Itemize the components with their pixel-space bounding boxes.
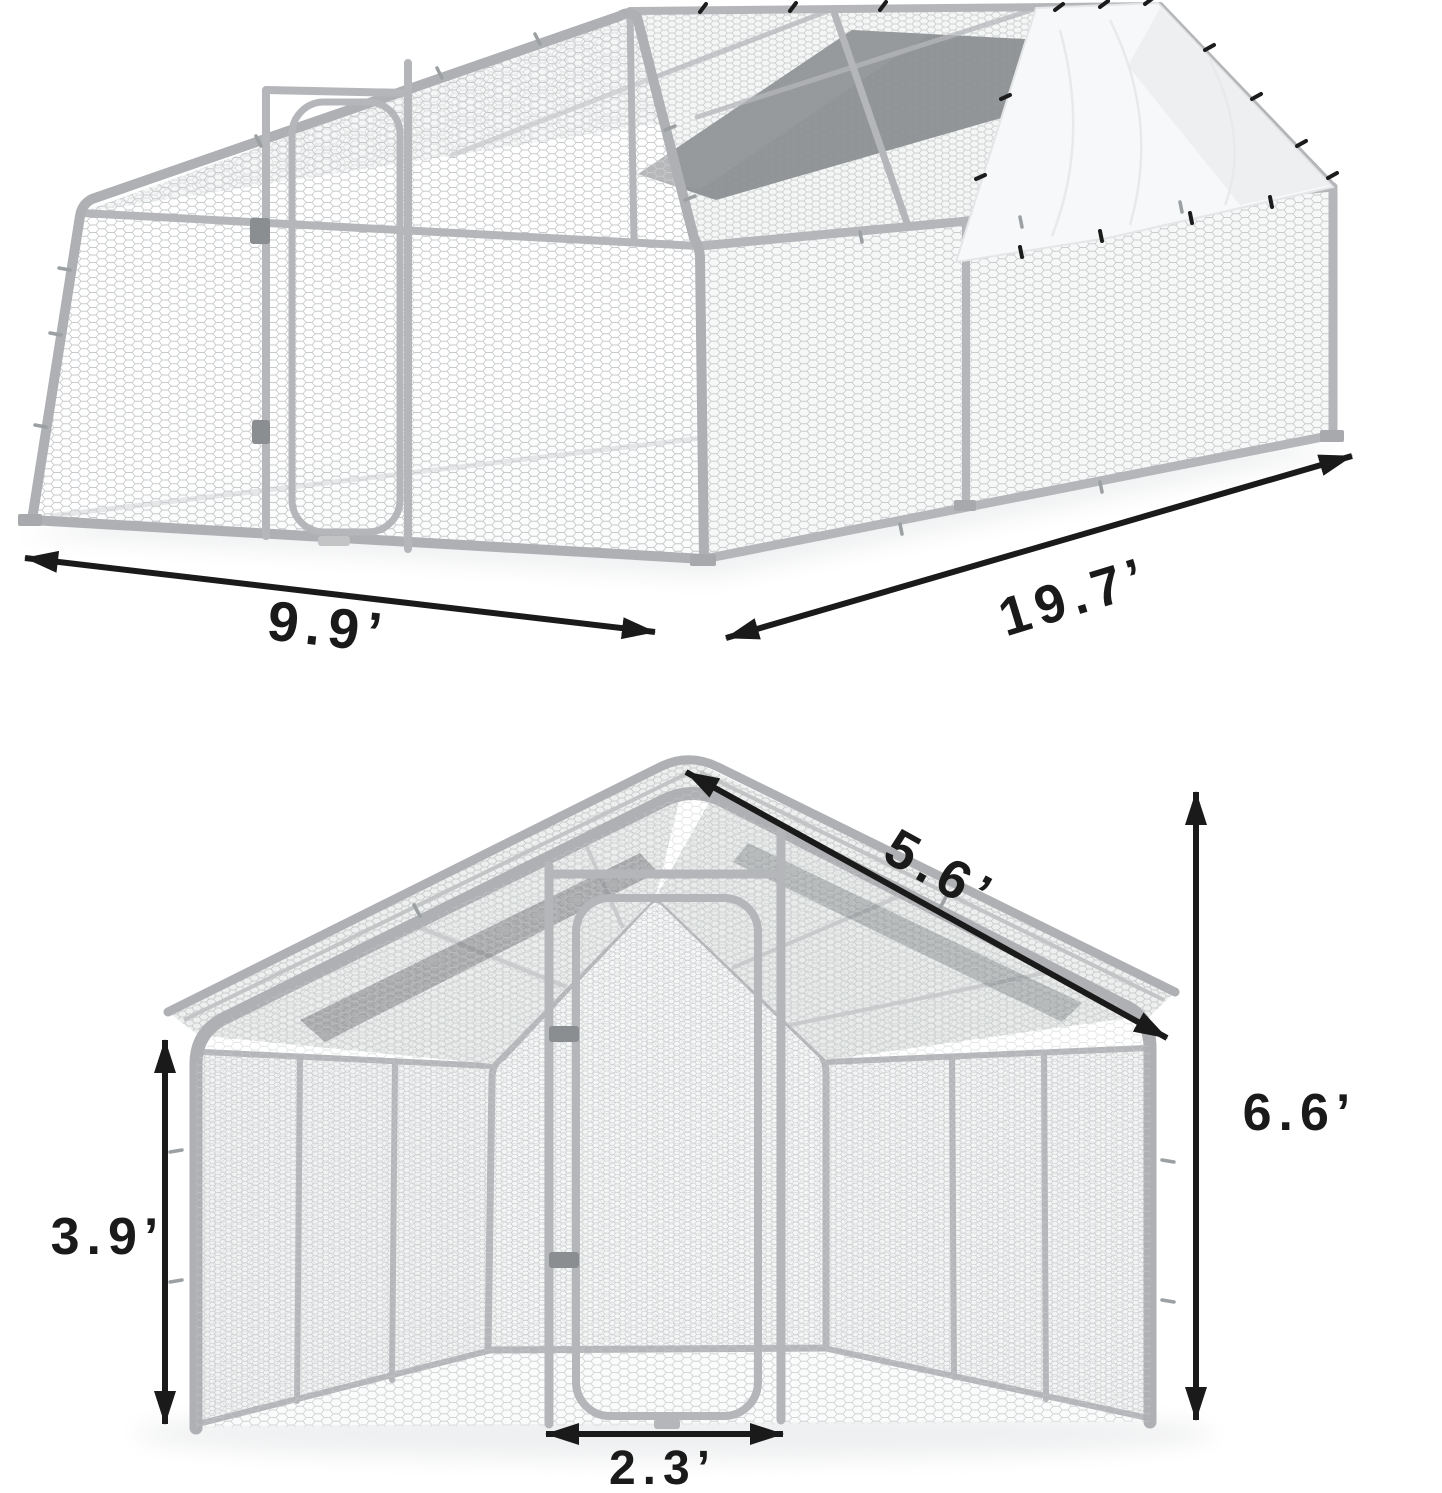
total-height-dimension-label: 6.6’ [1243,1084,1358,1142]
product-dimension-diagram: 9.9’ 19.7’ [0,0,1442,1493]
front-peak-post [630,14,634,242]
front-door-foot [654,1419,680,1429]
door-foot [318,536,350,546]
width-dimension-label: 9.9’ [264,588,392,664]
door-width-dimension-label: 2.3’ [609,1442,717,1493]
front-door-latch [549,1026,579,1042]
isometric-view: 9.9’ 19.7’ [18,0,1352,665]
chicken-run-diagram-svg: 9.9’ 19.7’ [0,0,1442,1493]
front-elevation-view: 5.6’ 6.6’ 3.9’ 2.3’ [51,758,1358,1493]
length-dimension-label: 19.7’ [992,545,1158,648]
door-latch [250,218,270,244]
front-face-mesh [196,789,1150,1428]
door-hinge [252,420,270,444]
wall-height-dimension-label: 3.9’ [51,1208,166,1266]
front-door-hinge [549,1252,579,1268]
